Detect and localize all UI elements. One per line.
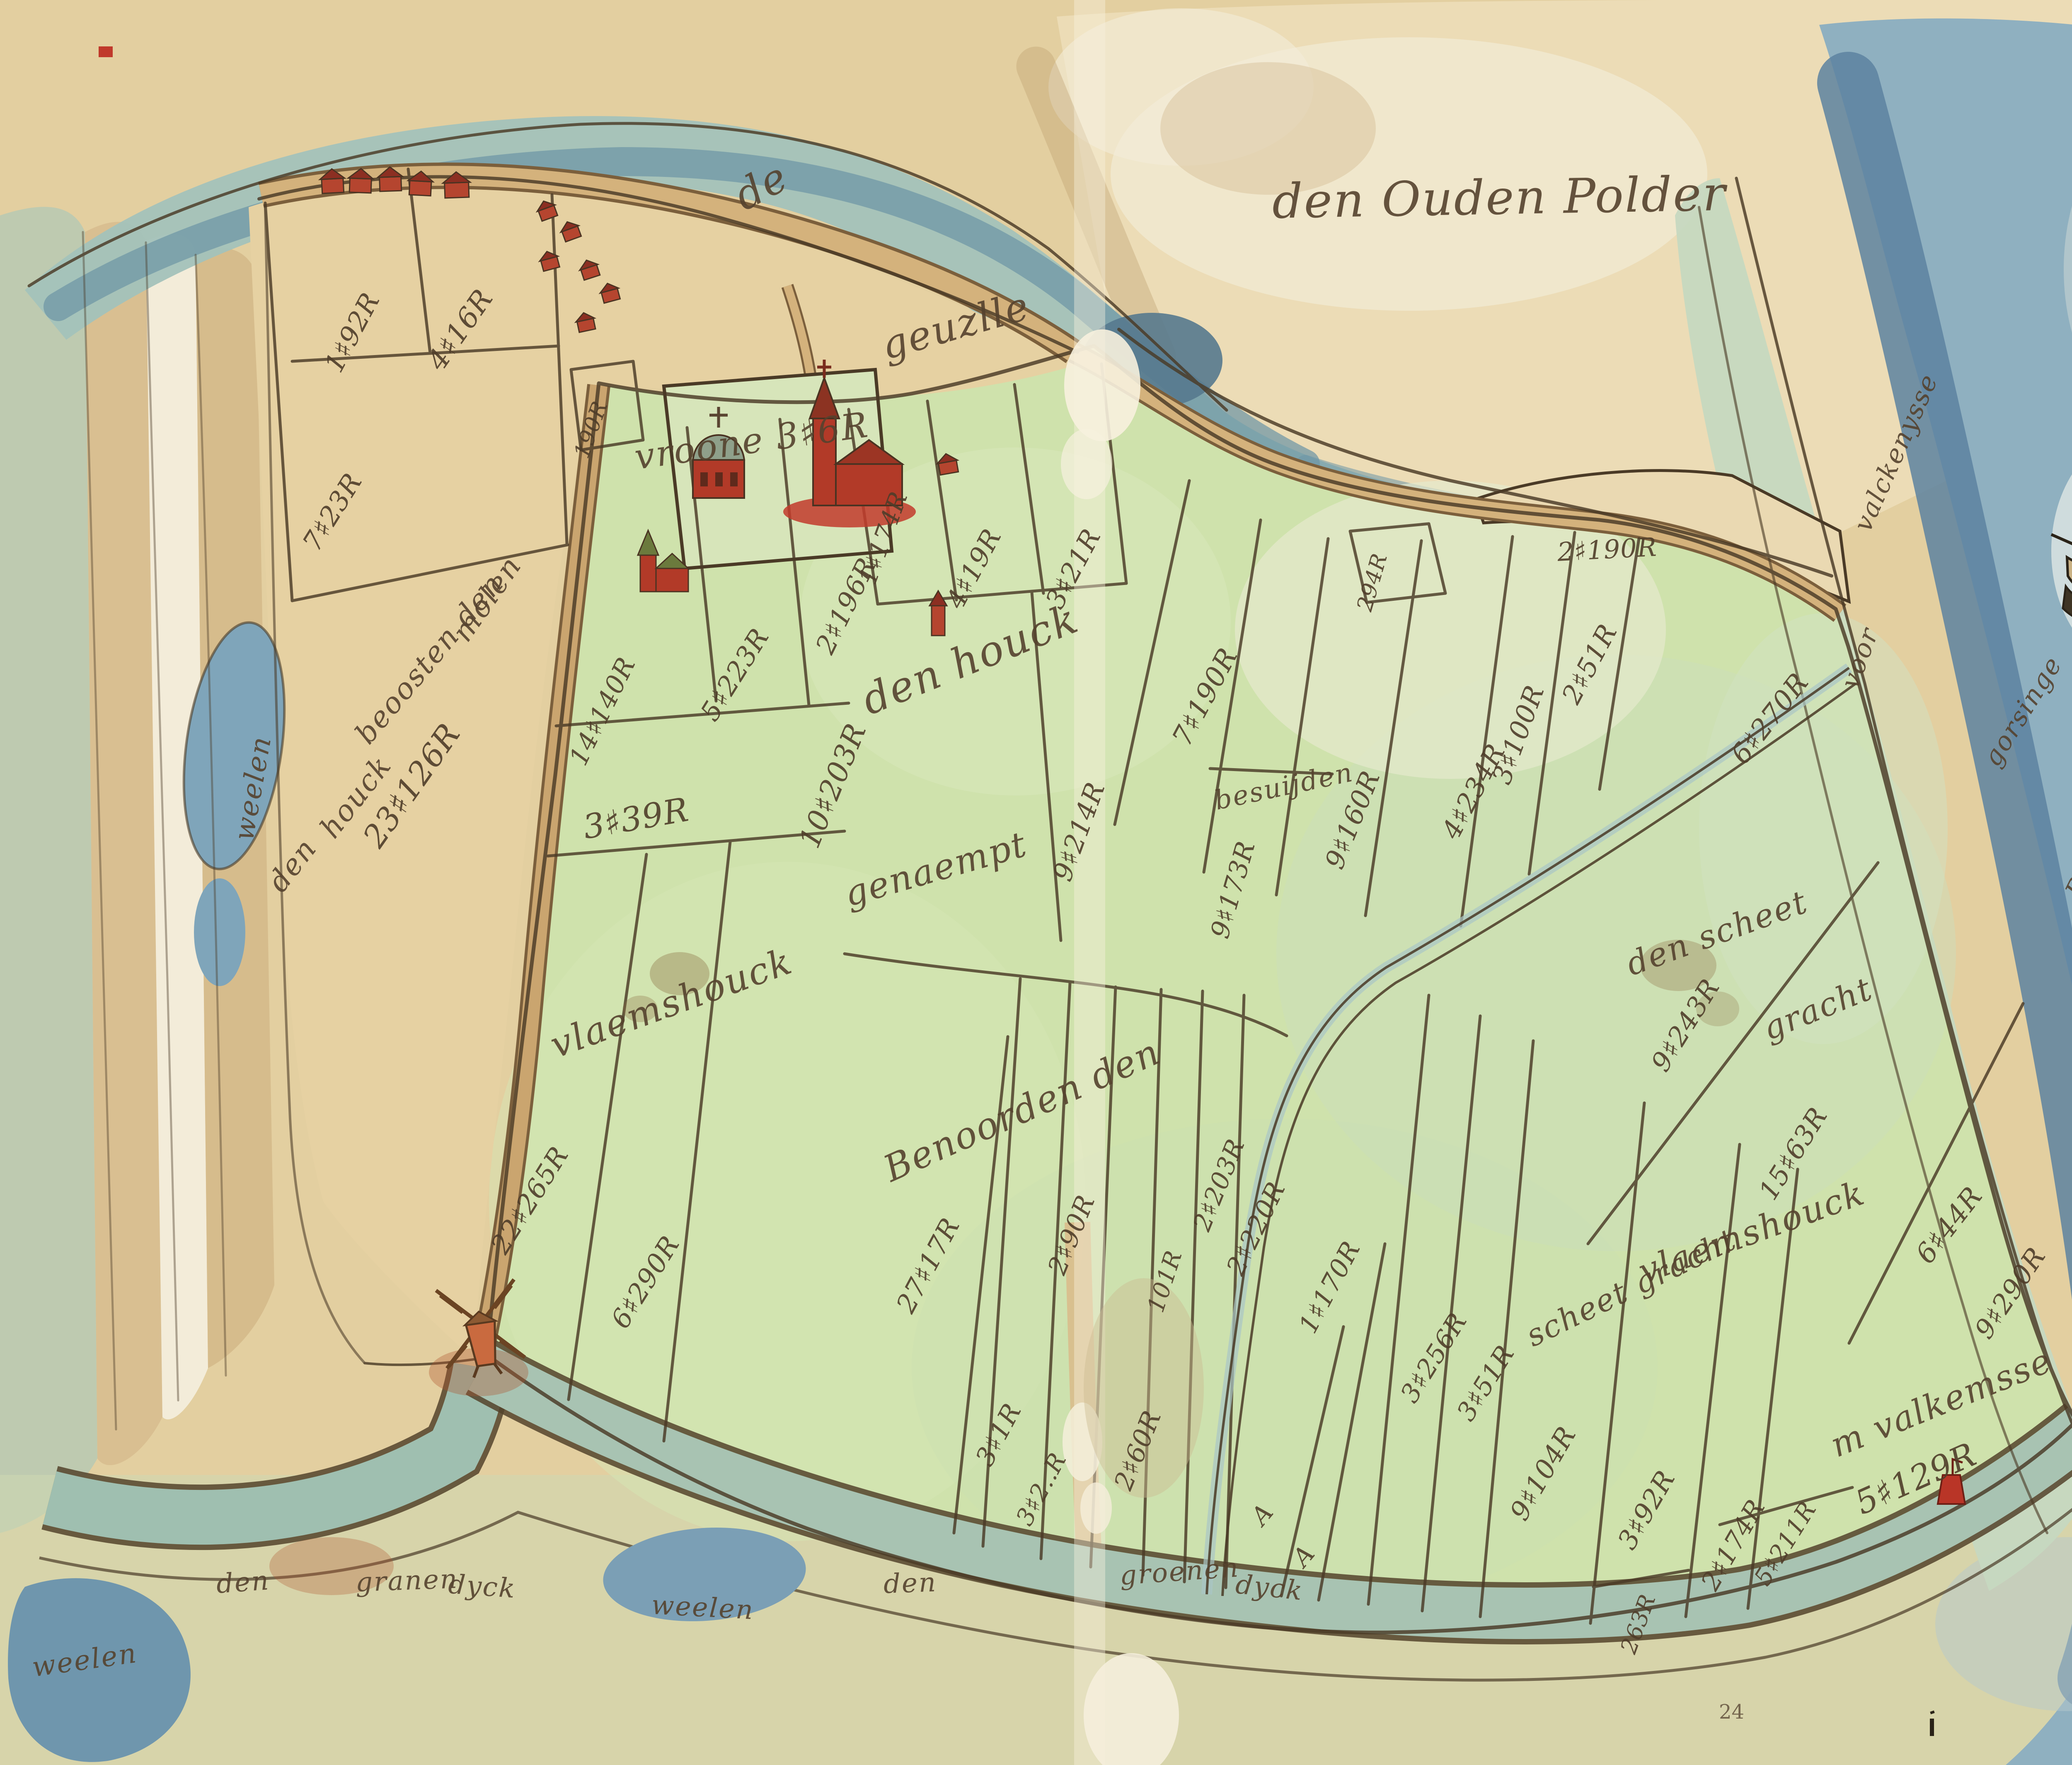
damage-patch bbox=[1080, 1482, 1112, 1534]
label-dyck-dyck: dyck bbox=[448, 1571, 517, 1602]
damage-patch bbox=[1061, 429, 1112, 499]
label-dyck-granen: granen bbox=[355, 1566, 459, 1596]
label-dyck-groenen: groenen bbox=[1119, 1555, 1240, 1589]
damage-patch bbox=[1064, 329, 1140, 441]
parcel-area-label: 2♯190R bbox=[1556, 534, 1657, 565]
label-dyck-dyck2: dyck bbox=[1234, 1571, 1305, 1605]
label-den-ouden-polder: den Ouden Polder bbox=[1272, 170, 1727, 226]
red-mark-topleft bbox=[99, 46, 113, 57]
field-tone bbox=[1699, 613, 1948, 1044]
polder-map: de geuzlle den Ouden Polder weelen molen… bbox=[0, 0, 2072, 1765]
label-weelen-south: weelen bbox=[651, 1592, 755, 1624]
page-number: 24 bbox=[1719, 1702, 1744, 1722]
label-dyck-den: den bbox=[215, 1567, 271, 1598]
label-dyck-den2: den bbox=[883, 1569, 937, 1598]
shore-band bbox=[0, 207, 97, 1533]
